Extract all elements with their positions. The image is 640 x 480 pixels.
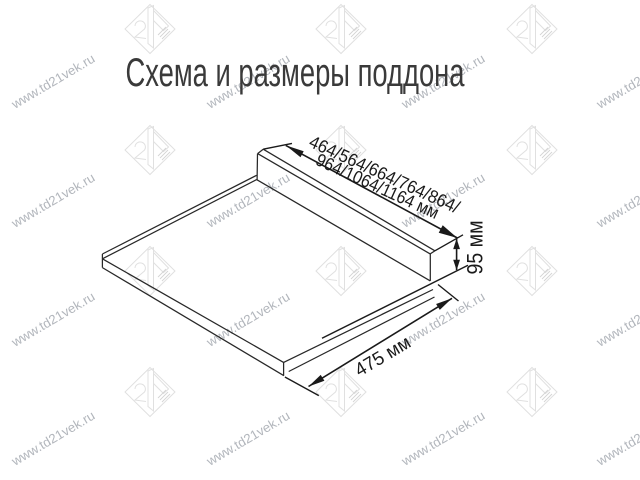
svg-text:95 мм: 95 мм [463,221,488,275]
svg-text:Схема и размеры поддона: Схема и размеры поддона [126,51,466,95]
svg-text:475 мм: 475 мм [351,332,414,381]
